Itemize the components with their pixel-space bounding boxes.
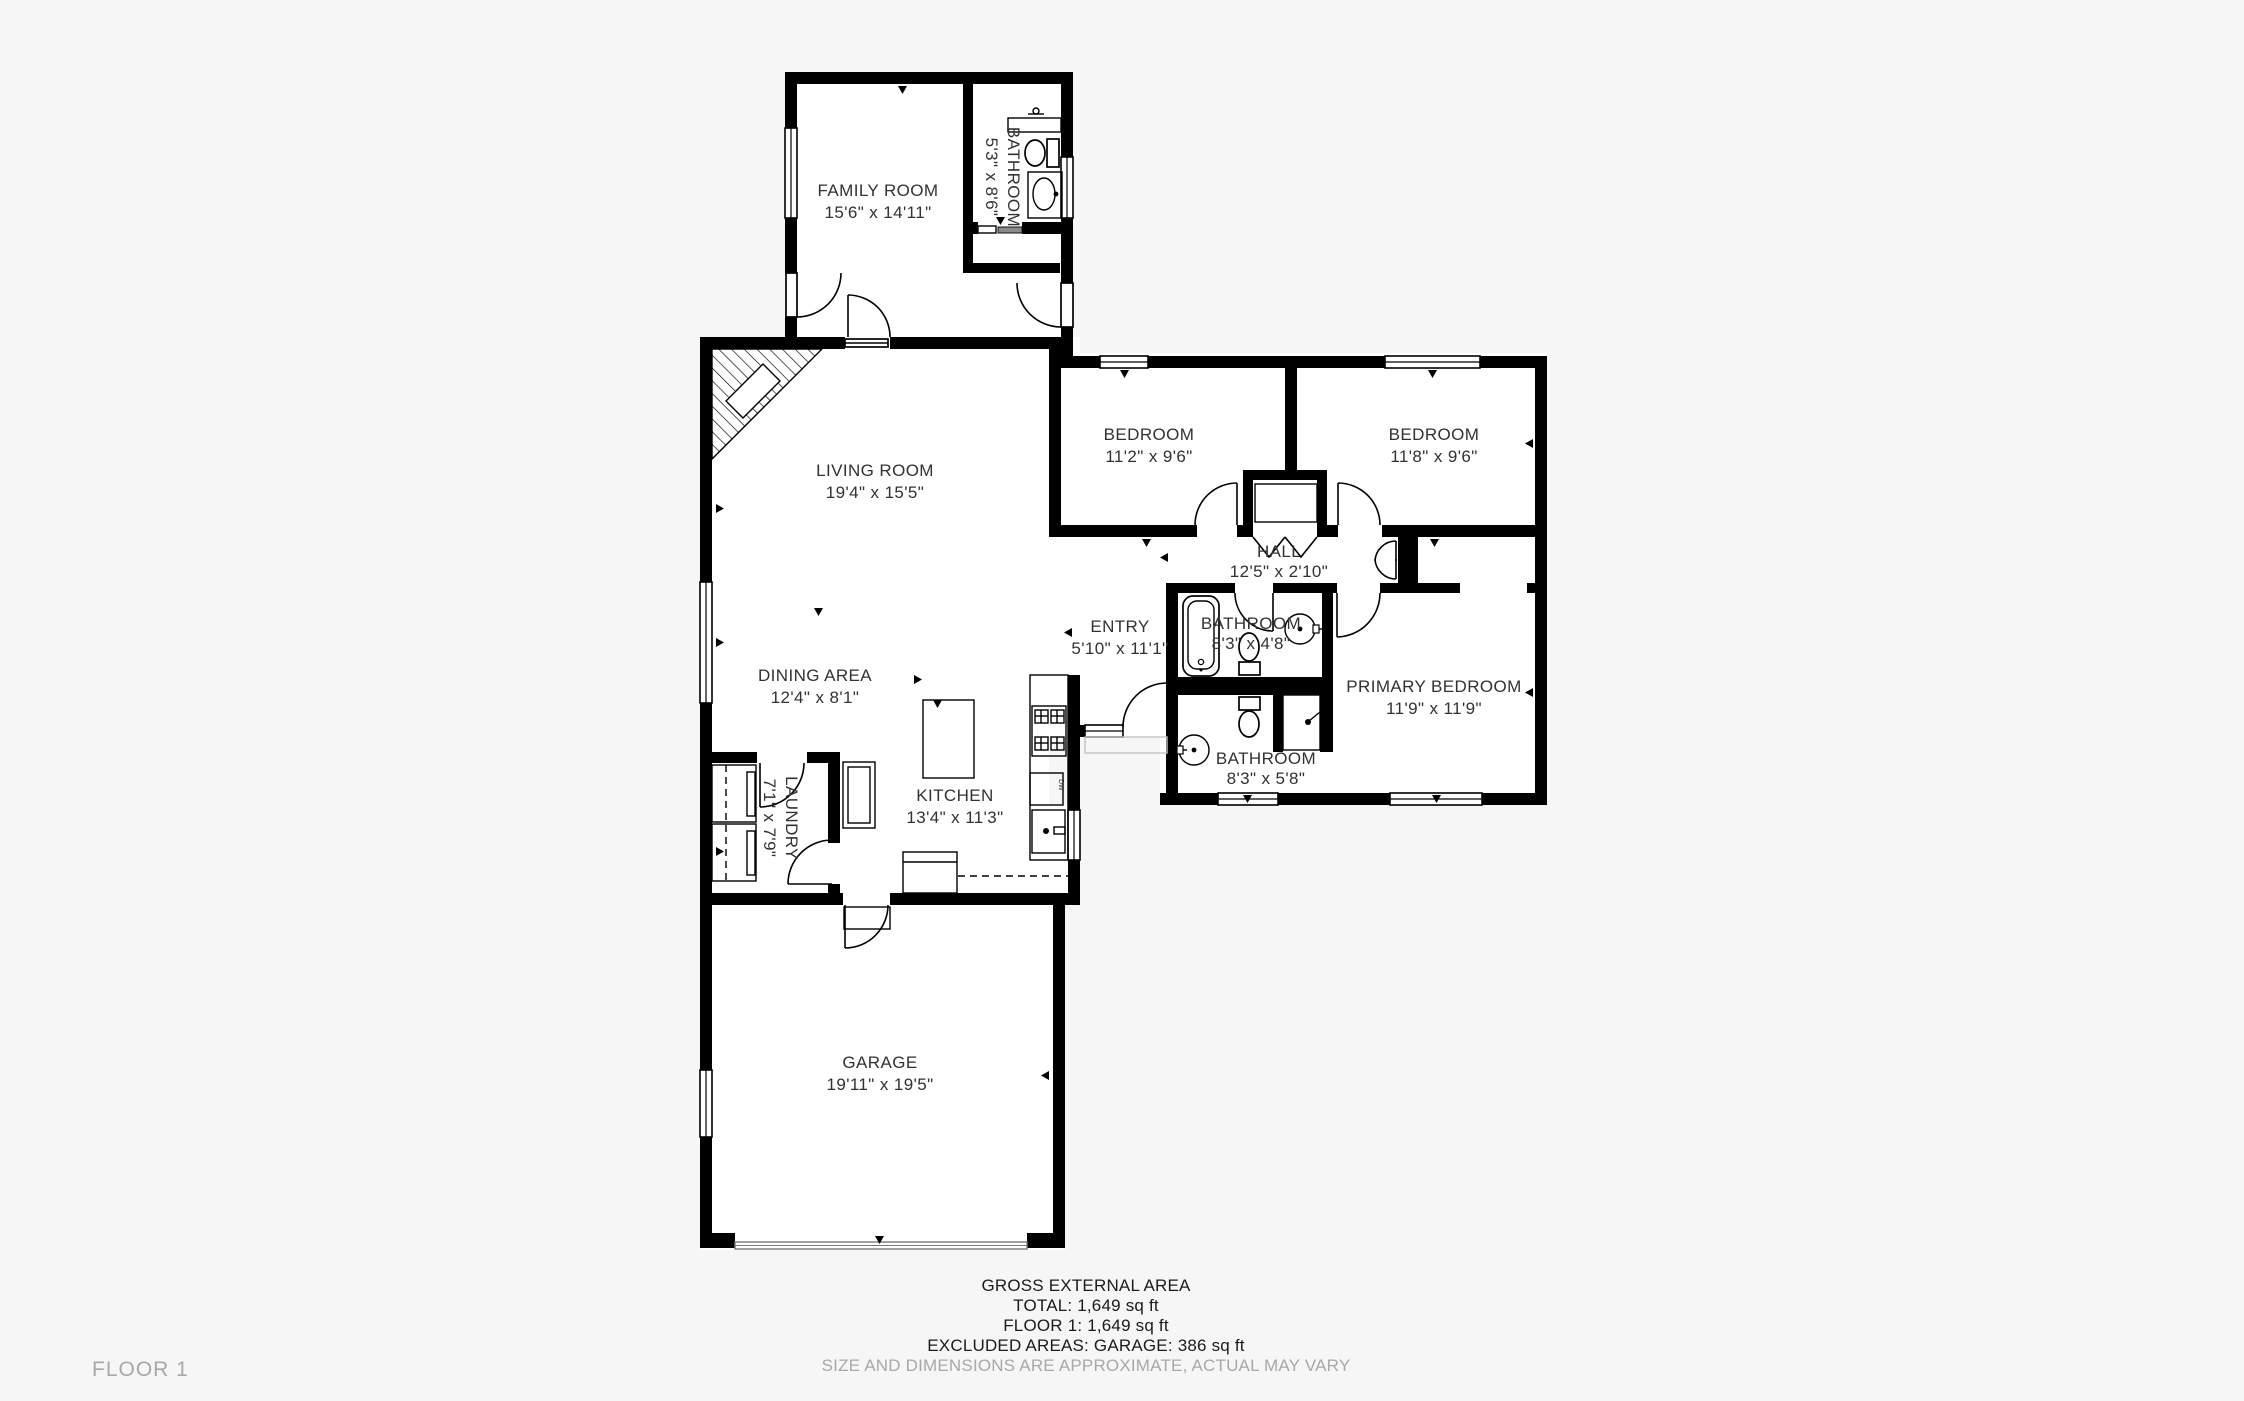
primary-bedroom-dims: 11'9" x 11'9" [1386, 699, 1482, 718]
bedroom-left-label: BEDROOM [1104, 425, 1195, 444]
bathroom-top-label: BATHROOM [1004, 127, 1023, 227]
summary-title: GROSS EXTERNAL AREA [981, 1276, 1191, 1295]
summary-floor: FLOOR 1: 1,649 sq ft [1003, 1316, 1169, 1335]
dining-area-label: DINING AREA [758, 666, 872, 685]
toilet-icon [1239, 697, 1260, 737]
area-summary: GROSS EXTERNAL AREA TOTAL: 1,649 sq ft F… [822, 1276, 1351, 1375]
floor-areas [700, 72, 1547, 1250]
window [785, 128, 797, 218]
summary-excluded: EXCLUDED AREAS: GARAGE: 386 sq ft [927, 1336, 1245, 1355]
sidelight-window [1085, 725, 1123, 737]
bathroom-lower-dims: 8'3" x 5'8" [1227, 769, 1306, 788]
family-room-label: FAMILY ROOM [818, 181, 939, 200]
floor-number-label: FLOOR 1 [92, 1358, 189, 1381]
window [1100, 356, 1148, 368]
garage-label: GARAGE [842, 1053, 917, 1072]
entry-label: ENTRY [1090, 617, 1149, 636]
bathroom-hall-dims: 8'3" x 4'8" [1212, 634, 1291, 653]
entry-dims: 5'10" x 11'1" [1071, 639, 1168, 658]
family-room-dims: 15'6" x 14'11" [824, 203, 931, 222]
window [700, 1070, 712, 1137]
bathroom-lower-label: BATHROOM [1216, 749, 1316, 768]
pocket-door [998, 227, 1022, 233]
hall-label: HALL [1257, 542, 1301, 561]
kitchen-label: KITCHEN [916, 786, 993, 805]
primary-bedroom-label: PRIMARY BEDROOM [1346, 677, 1521, 696]
laundry-label: LAUNDRY [782, 776, 801, 860]
hall-dims: 12'5" x 2'10" [1230, 562, 1328, 581]
summary-total: TOTAL: 1,649 sq ft [1013, 1296, 1159, 1315]
living-room-label: LIVING ROOM [816, 461, 934, 480]
bedroom-right-dims: 11'8" x 9'6" [1390, 447, 1477, 466]
window [1068, 810, 1080, 860]
bathroom-hall-label: BATHROOM [1201, 614, 1301, 633]
kitchen-dims: 13'4" x 11'3" [906, 808, 1003, 827]
window [1061, 157, 1073, 218]
window [1385, 356, 1480, 368]
laundry-dims: 7'1" x 7'9" [760, 779, 779, 858]
bathroom-top-dims: 5'3" x 8'6" [982, 138, 1001, 217]
floorplan-page: DW FAMILY R [0, 0, 2244, 1401]
garage-dims: 19'11" x 19'5" [826, 1075, 933, 1094]
dining-area-dims: 12'4" x 8'1" [771, 688, 860, 707]
window [700, 582, 712, 703]
summary-disclaimer: SIZE AND DIMENSIONS ARE APPROXIMATE, ACT… [822, 1356, 1351, 1375]
bedroom-right-label: BEDROOM [1389, 425, 1480, 444]
dishwasher-label: DW [1057, 779, 1064, 791]
living-room-dims: 19'4" x 15'5" [826, 483, 924, 502]
floorplan-drawing: DW FAMILY R [0, 0, 2244, 1401]
toilet-icon [1025, 139, 1059, 167]
garage-door [735, 1242, 1027, 1249]
bedroom-left-dims: 11'2" x 9'6" [1105, 447, 1192, 466]
